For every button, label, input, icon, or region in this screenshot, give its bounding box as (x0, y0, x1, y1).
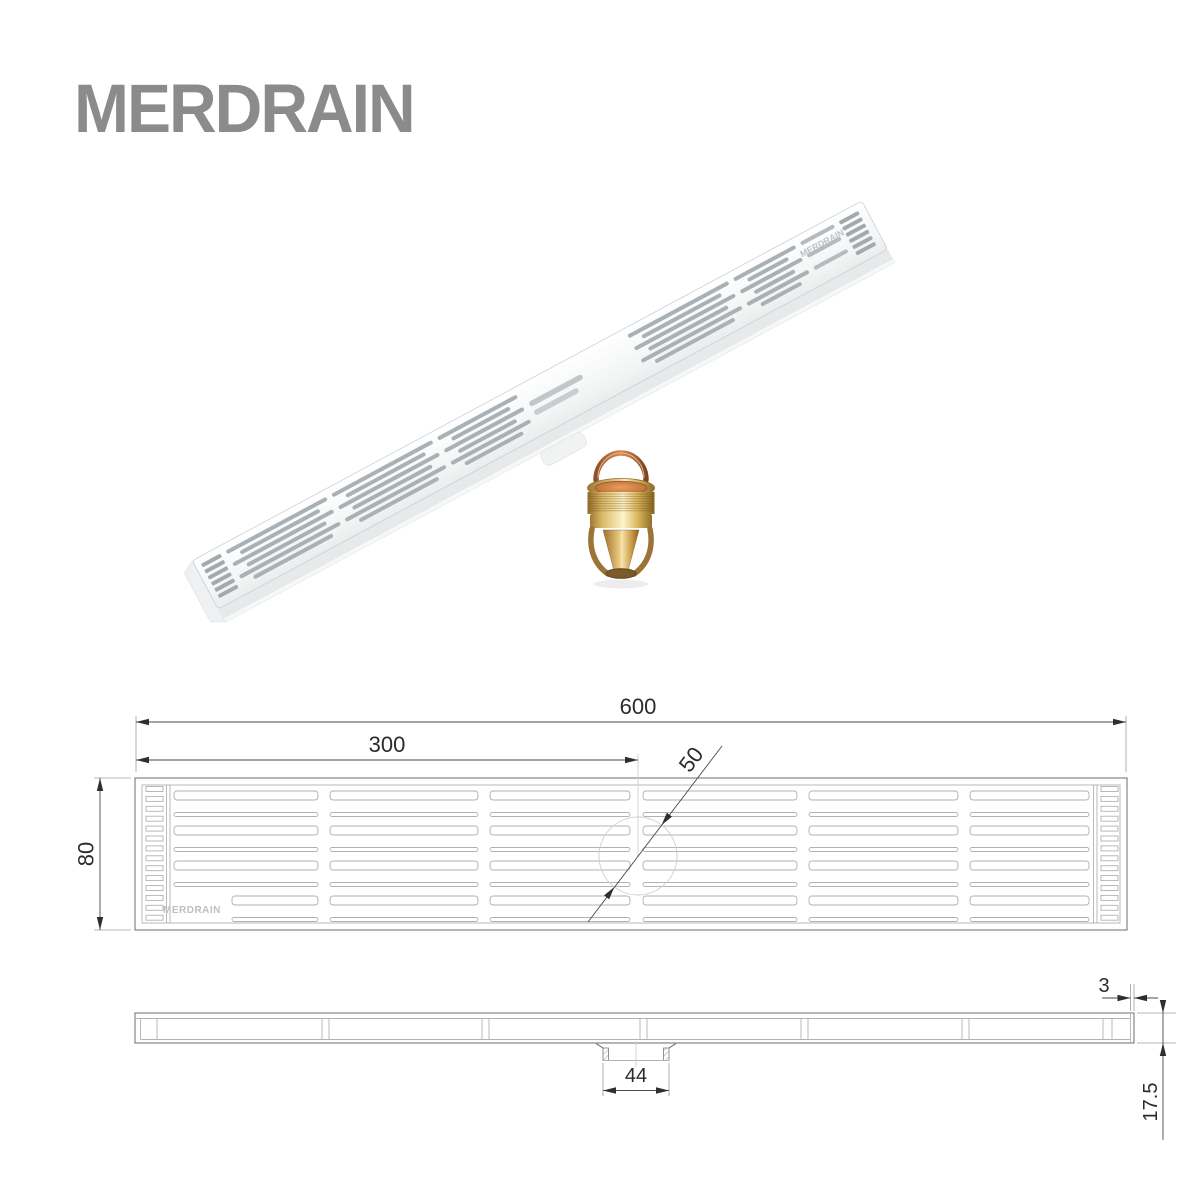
dim-arrowhead (1113, 719, 1126, 725)
grate-slot (809, 826, 958, 835)
grate-slot-thin (330, 813, 478, 817)
grate-slot (970, 826, 1089, 835)
dim-arrowhead (625, 757, 638, 763)
top-view-outline (135, 778, 1127, 930)
comb-tooth (146, 787, 163, 792)
collar-flare (669, 1044, 676, 1049)
grate-slot-thin (970, 883, 1089, 887)
comb-tooth (1101, 876, 1118, 881)
comb-tooth (146, 826, 163, 831)
sheet-canvas: MERDRAIN MERDRAIN (0, 0, 1200, 1200)
grate-slot-thin (643, 918, 797, 922)
dim-arrowhead (662, 813, 672, 825)
grate-slot-thin (970, 813, 1089, 817)
grate-slot (643, 826, 797, 835)
grate-slot (174, 861, 318, 870)
comb-tooth (1101, 796, 1118, 801)
grate-slot-thin (490, 918, 630, 922)
grate-slot (330, 896, 478, 905)
grate-slot-thin (330, 848, 478, 852)
dim-arrowhead (1134, 995, 1147, 1001)
grate-slot-thin (643, 848, 797, 852)
collar-flare (596, 1044, 603, 1049)
grate-slot (490, 791, 630, 800)
grate-slot-thin (490, 813, 630, 817)
dim-arrowhead (656, 1087, 669, 1093)
comb-tooth (146, 886, 163, 891)
comb-tooth (1101, 846, 1118, 851)
dim-arrowhead (97, 917, 103, 930)
core-handle (596, 453, 646, 480)
dim-arrowhead (603, 1087, 616, 1093)
comb-tooth (146, 836, 163, 841)
grate-slot (643, 896, 797, 905)
comb-tooth (1101, 816, 1118, 821)
side-view-drawing: 44 3 17.5 (135, 975, 1176, 1140)
dim-hole-diameter-label: 50 (674, 742, 709, 777)
top-view-right-bar (1094, 785, 1098, 923)
grate-slot (809, 861, 958, 870)
dim-width-label: 80 (74, 842, 99, 866)
comb-tooth (146, 915, 163, 920)
grate-slot (330, 861, 478, 870)
comb-tooth (1101, 866, 1118, 871)
grate-slot (970, 791, 1089, 800)
grate-slot-thin (490, 883, 630, 887)
grate-slot (970, 896, 1089, 905)
top-view-engraving: MERDRAIN (163, 905, 221, 916)
grate-slot-thin (809, 918, 958, 922)
grate-slot-thin (490, 848, 630, 852)
comb-tooth (1101, 886, 1118, 891)
comb-tooth (1101, 856, 1118, 861)
top-view-drawing: MERDRAIN 600 300 80 50 (74, 694, 1127, 930)
grate-slot (174, 791, 318, 800)
comb-tooth (146, 846, 163, 851)
dim-edge-thickness-label: 3 (1098, 975, 1109, 997)
product-sheet: MERDRAIN (0, 0, 1200, 1200)
grate-slot (643, 791, 797, 800)
dim-arrowhead (1160, 1000, 1166, 1013)
comb-tooth (146, 856, 163, 861)
grate-slot-thin (330, 918, 478, 922)
grate-slot-thin (232, 918, 318, 922)
comb-tooth (1101, 806, 1118, 811)
dim-center-offset-label: 300 (369, 732, 406, 757)
dim-arrowhead (1118, 995, 1131, 1001)
grate-slot-thin (174, 848, 318, 852)
core-shadow (594, 580, 648, 589)
grate-slot (490, 861, 630, 870)
grate-slot (970, 861, 1089, 870)
grate-slot-thin (809, 848, 958, 852)
comb-tooth (146, 876, 163, 881)
grate-slot-thin (330, 883, 478, 887)
grate-slot-thin (174, 813, 318, 817)
collar-wall-left (603, 1048, 609, 1061)
top-view-inner-frame (142, 785, 1120, 923)
dimension-arrows (97, 719, 1166, 1094)
comb-tooth (146, 895, 163, 900)
grate-slot-thin (809, 813, 958, 817)
core-collar-band (590, 514, 652, 528)
core-foot-ring (606, 569, 636, 579)
drain-core-3d-render (588, 453, 655, 589)
dim-arrowhead (97, 778, 103, 791)
side-view-dividers (141, 1019, 1113, 1040)
grate-slot-thin (970, 918, 1089, 922)
comb-tooth (1101, 905, 1118, 910)
dim-arrowhead (604, 887, 614, 899)
grate-slot (232, 896, 318, 905)
grate-3d-render: MERDRAIN (181, 201, 902, 642)
comb-tooth (1101, 915, 1118, 920)
grate-side-face (218, 249, 893, 618)
dim-arrowhead (136, 719, 149, 725)
top-view-left-bar (167, 785, 171, 923)
grate-slot (174, 826, 318, 835)
comb-tooth (146, 816, 163, 821)
grate-slot (809, 896, 958, 905)
grate-slot (643, 861, 797, 870)
top-view-slots (146, 787, 1118, 922)
grate-bottom-lip (223, 259, 895, 623)
dim-arrowhead (1160, 1043, 1166, 1056)
grate-slot (330, 791, 478, 800)
grate-slot (809, 791, 958, 800)
grate-slot-thin (174, 883, 318, 887)
comb-tooth (146, 796, 163, 801)
grate-slot (330, 826, 478, 835)
comb-tooth (1101, 836, 1118, 841)
grate-slot-thin (809, 883, 958, 887)
dim-outlet-width-label: 44 (625, 1065, 647, 1087)
comb-tooth (146, 905, 163, 910)
comb-tooth (1101, 787, 1118, 792)
comb-tooth (1101, 826, 1118, 831)
dim-overall-length-label: 600 (620, 694, 657, 719)
comb-tooth (1101, 895, 1118, 900)
core-cone (603, 530, 639, 571)
dim-profile-height-label: 17.5 (1140, 1083, 1162, 1122)
comb-tooth (146, 806, 163, 811)
collar-wall-right (664, 1048, 670, 1061)
dim-arrowhead (136, 757, 149, 763)
comb-tooth (146, 866, 163, 871)
grate-slot-thin (970, 848, 1089, 852)
side-view-outline (135, 1013, 1134, 1043)
